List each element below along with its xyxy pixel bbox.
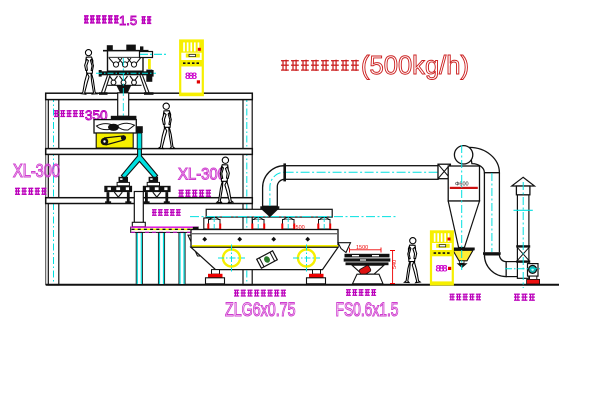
svg-text:888: 888 [436, 264, 448, 275]
svg-text:888: 888 [185, 71, 197, 82]
svg-text:(500kg/h): (500kg/h) [361, 50, 469, 80]
svg-text:1500: 1500 [356, 245, 368, 251]
svg-text:FS0.6x1.5: FS0.6x1.5 [336, 300, 399, 321]
svg-text:1.5: 1.5 [119, 13, 137, 28]
svg-text:540: 540 [392, 260, 398, 269]
svg-text:XL-300: XL-300 [178, 165, 226, 184]
svg-text:XL-300: XL-300 [13, 161, 60, 181]
svg-text:ZLG6x0.75: ZLG6x0.75 [225, 300, 296, 321]
